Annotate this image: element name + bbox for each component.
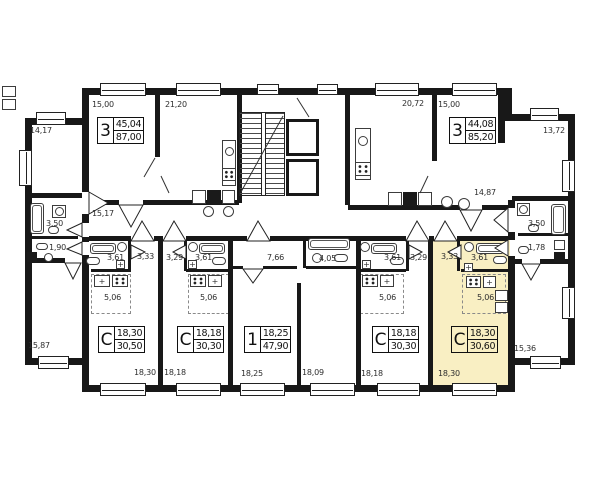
cabinet-box	[380, 275, 394, 287]
door-opening	[434, 221, 457, 241]
wall	[568, 114, 575, 365]
washer-icon	[464, 263, 473, 272]
dim-label: 3,29	[410, 253, 427, 262]
wall	[508, 200, 515, 208]
wall	[233, 266, 243, 269]
door-leaf	[161, 176, 169, 193]
dim-label: 21,20	[165, 100, 187, 109]
unit-info-apt-3-left[interactable]: 3 45,0487,00	[97, 117, 144, 144]
sink-icon	[225, 147, 234, 156]
wall	[186, 269, 228, 272]
unit-total-area: 87,00	[114, 131, 143, 143]
wall	[89, 200, 119, 205]
wall	[82, 214, 89, 223]
window	[562, 160, 575, 192]
wall	[508, 256, 515, 392]
unit-total-area: 85,20	[466, 131, 495, 143]
wall	[345, 95, 350, 205]
dim-label: 1,90	[49, 243, 66, 252]
window	[38, 356, 69, 369]
appliance-box	[207, 190, 221, 204]
shaft-box	[554, 252, 565, 262]
window	[100, 83, 146, 96]
unit-type: С	[99, 327, 115, 352]
window	[530, 108, 559, 121]
dim-label: 14,17	[30, 126, 52, 135]
window	[240, 383, 285, 396]
door-leaf	[420, 176, 428, 193]
stove-icon	[222, 168, 236, 181]
unit-total-area: 47,90	[261, 340, 290, 352]
window	[176, 83, 221, 96]
wall	[184, 241, 187, 271]
wall	[89, 236, 131, 241]
window	[530, 356, 561, 369]
unit-living-area: 18,18	[389, 327, 418, 340]
door-opening	[119, 205, 143, 227]
window	[19, 150, 32, 186]
window	[317, 84, 338, 95]
cabinet-box	[94, 275, 110, 287]
dim-label: 15,00	[438, 100, 460, 109]
dim-label: 1,78	[528, 243, 545, 252]
unit-total-area: 30,50	[115, 340, 144, 352]
door-opening	[131, 221, 154, 241]
wall	[263, 266, 297, 269]
door-opening	[406, 221, 429, 241]
door-opening	[247, 221, 270, 241]
dim-label: 3,33	[137, 252, 154, 261]
burner-icon	[203, 206, 214, 217]
dim-label: 5,06	[477, 293, 494, 302]
unit-info-studio-3[interactable]: С 18,1830,30	[372, 326, 419, 353]
dim-label: 18,30	[134, 368, 156, 377]
sink-icon	[36, 243, 48, 250]
dim-label: 3,50	[46, 219, 63, 228]
toilet-icon	[493, 256, 507, 264]
appliance-box	[222, 190, 235, 204]
stove-icon	[190, 275, 206, 287]
unit-info-studio-2[interactable]: С 18,1830,30	[177, 326, 224, 353]
wall	[512, 259, 522, 264]
dim-label: 5,06	[104, 293, 121, 302]
window	[100, 383, 146, 396]
dim-label: 5,06	[379, 293, 396, 302]
dim-label: 7,66	[267, 253, 284, 262]
window	[562, 287, 575, 319]
unit-type: 3	[450, 118, 466, 143]
wall	[228, 241, 233, 385]
appliance-box	[403, 192, 417, 206]
wall	[303, 236, 306, 268]
door-opening	[65, 263, 81, 279]
unit-type: С	[373, 327, 389, 352]
bathtub	[308, 238, 350, 250]
burner-icon	[223, 206, 234, 217]
unit-living-area: 45,04	[114, 118, 143, 131]
bathtub	[30, 203, 44, 234]
dim-label: 3,50	[528, 219, 545, 228]
wall	[508, 232, 515, 240]
fridge-box	[495, 302, 508, 313]
window	[452, 83, 497, 96]
dim-label: 3,29	[166, 253, 183, 262]
unit-living-area: 18,18	[194, 327, 223, 340]
sink-icon	[360, 242, 370, 252]
wall	[428, 241, 433, 385]
washer-icon	[362, 260, 371, 269]
unit-type: 3	[98, 118, 114, 143]
dim-label: 5,06	[200, 293, 217, 302]
dim-label: 3,61	[195, 253, 212, 262]
wall	[32, 193, 82, 198]
dim-label: 3,33	[441, 252, 458, 261]
wall	[512, 196, 568, 201]
sink-icon	[519, 205, 528, 214]
vent-shaft	[2, 99, 16, 110]
dim-label: 15,00	[92, 100, 114, 109]
wall	[297, 283, 301, 385]
sink-icon	[464, 242, 474, 252]
toilet-icon	[212, 257, 226, 265]
wall	[32, 236, 78, 239]
burner-icon	[441, 196, 453, 208]
window	[36, 112, 66, 125]
unit-living-area: 44,08	[466, 118, 495, 131]
stove-icon	[362, 275, 378, 287]
window	[377, 383, 420, 396]
fridge-box	[495, 290, 508, 301]
wall	[155, 95, 160, 157]
burner-icon	[458, 198, 470, 210]
unit-type: 1	[245, 327, 261, 352]
door-opening	[67, 242, 82, 255]
cabinet-box	[208, 275, 222, 287]
dim-label: 18,30	[438, 369, 460, 378]
wall	[128, 241, 131, 271]
sink-icon	[188, 242, 198, 252]
elevator-shaft	[286, 159, 319, 196]
elevator-shaft	[286, 119, 319, 156]
unit-total-area: 30,60	[468, 340, 497, 352]
unit-living-area: 18,30	[115, 327, 144, 340]
unit-info-apt-1[interactable]: 1 18,2547,90	[244, 326, 291, 353]
wall	[82, 88, 89, 192]
door-opening	[522, 264, 540, 280]
wall	[359, 269, 406, 272]
wall	[306, 266, 356, 269]
unit-living-area: 18,25	[261, 327, 290, 340]
wall	[82, 385, 513, 392]
wall	[186, 236, 247, 241]
wall	[432, 95, 437, 161]
dim-label: 20,72	[402, 99, 424, 108]
window	[452, 383, 497, 396]
unit-info-apt-3-right[interactable]: 3 44,0885,20	[449, 117, 496, 144]
toilet-icon	[86, 257, 100, 265]
door-leaf	[297, 98, 309, 117]
shaft-box	[27, 252, 37, 262]
dim-label: 14,87	[474, 188, 496, 197]
dim-label: 4,05	[319, 254, 336, 263]
wall	[457, 236, 508, 241]
shaft-box	[554, 240, 565, 250]
cabinet-box	[483, 276, 496, 288]
door-opening	[67, 223, 82, 237]
unit-total-area: 30,30	[194, 340, 223, 352]
dim-label: 18,25	[241, 369, 263, 378]
door-opening	[163, 221, 186, 241]
sink-icon	[358, 136, 368, 146]
wall	[356, 241, 361, 385]
dim-label: 18,09	[302, 368, 324, 377]
dim-label: 18,18	[164, 368, 186, 377]
bathtub	[551, 204, 566, 235]
appliance-box	[192, 190, 206, 204]
window	[310, 383, 355, 396]
sink-icon	[55, 207, 64, 216]
window	[257, 84, 279, 95]
door-opening	[494, 208, 508, 232]
toilet-icon	[334, 254, 348, 262]
dim-label: 3,61	[107, 253, 124, 262]
dim-label: 3,61	[384, 253, 401, 262]
dim-label: 3,61	[471, 253, 488, 262]
unit-type: С	[452, 327, 468, 352]
wall	[505, 88, 512, 121]
toilet-icon	[44, 253, 53, 262]
window	[375, 83, 419, 96]
unit-info-studio-4-selected[interactable]: С 18,3030,60	[451, 326, 498, 353]
appliance-box	[388, 192, 402, 206]
window	[176, 383, 221, 396]
dim-label: 13,72	[543, 126, 565, 135]
unit-living-area: 18,30	[468, 327, 497, 340]
stove-icon	[355, 162, 371, 176]
floor-plan: 15,00 21,20 20,72 15,00 14,17 13,72 15,1…	[0, 0, 600, 480]
door-opening	[460, 210, 482, 231]
wall	[498, 95, 505, 143]
wall	[158, 241, 163, 385]
door-leaf	[144, 158, 155, 177]
wall	[482, 205, 508, 210]
dim-label: 18,18	[361, 369, 383, 378]
unit-info-studio-1[interactable]: С 18,3030,50	[98, 326, 145, 353]
stove-icon	[112, 275, 128, 287]
stove-icon	[466, 276, 481, 288]
unit-type: С	[178, 327, 194, 352]
dim-label: 15,36	[514, 344, 536, 353]
sink-icon	[117, 242, 127, 252]
wall	[82, 255, 89, 392]
wall	[406, 241, 409, 271]
staircase	[239, 112, 285, 196]
dim-label: 15,17	[92, 209, 114, 218]
wall	[82, 88, 512, 95]
door-opening	[243, 269, 263, 283]
vent-shaft	[2, 86, 16, 97]
wall	[91, 269, 131, 272]
dim-label: 15,87	[28, 341, 50, 350]
wall	[82, 237, 89, 242]
appliance-box	[418, 192, 432, 206]
unit-total-area: 30,30	[389, 340, 418, 352]
